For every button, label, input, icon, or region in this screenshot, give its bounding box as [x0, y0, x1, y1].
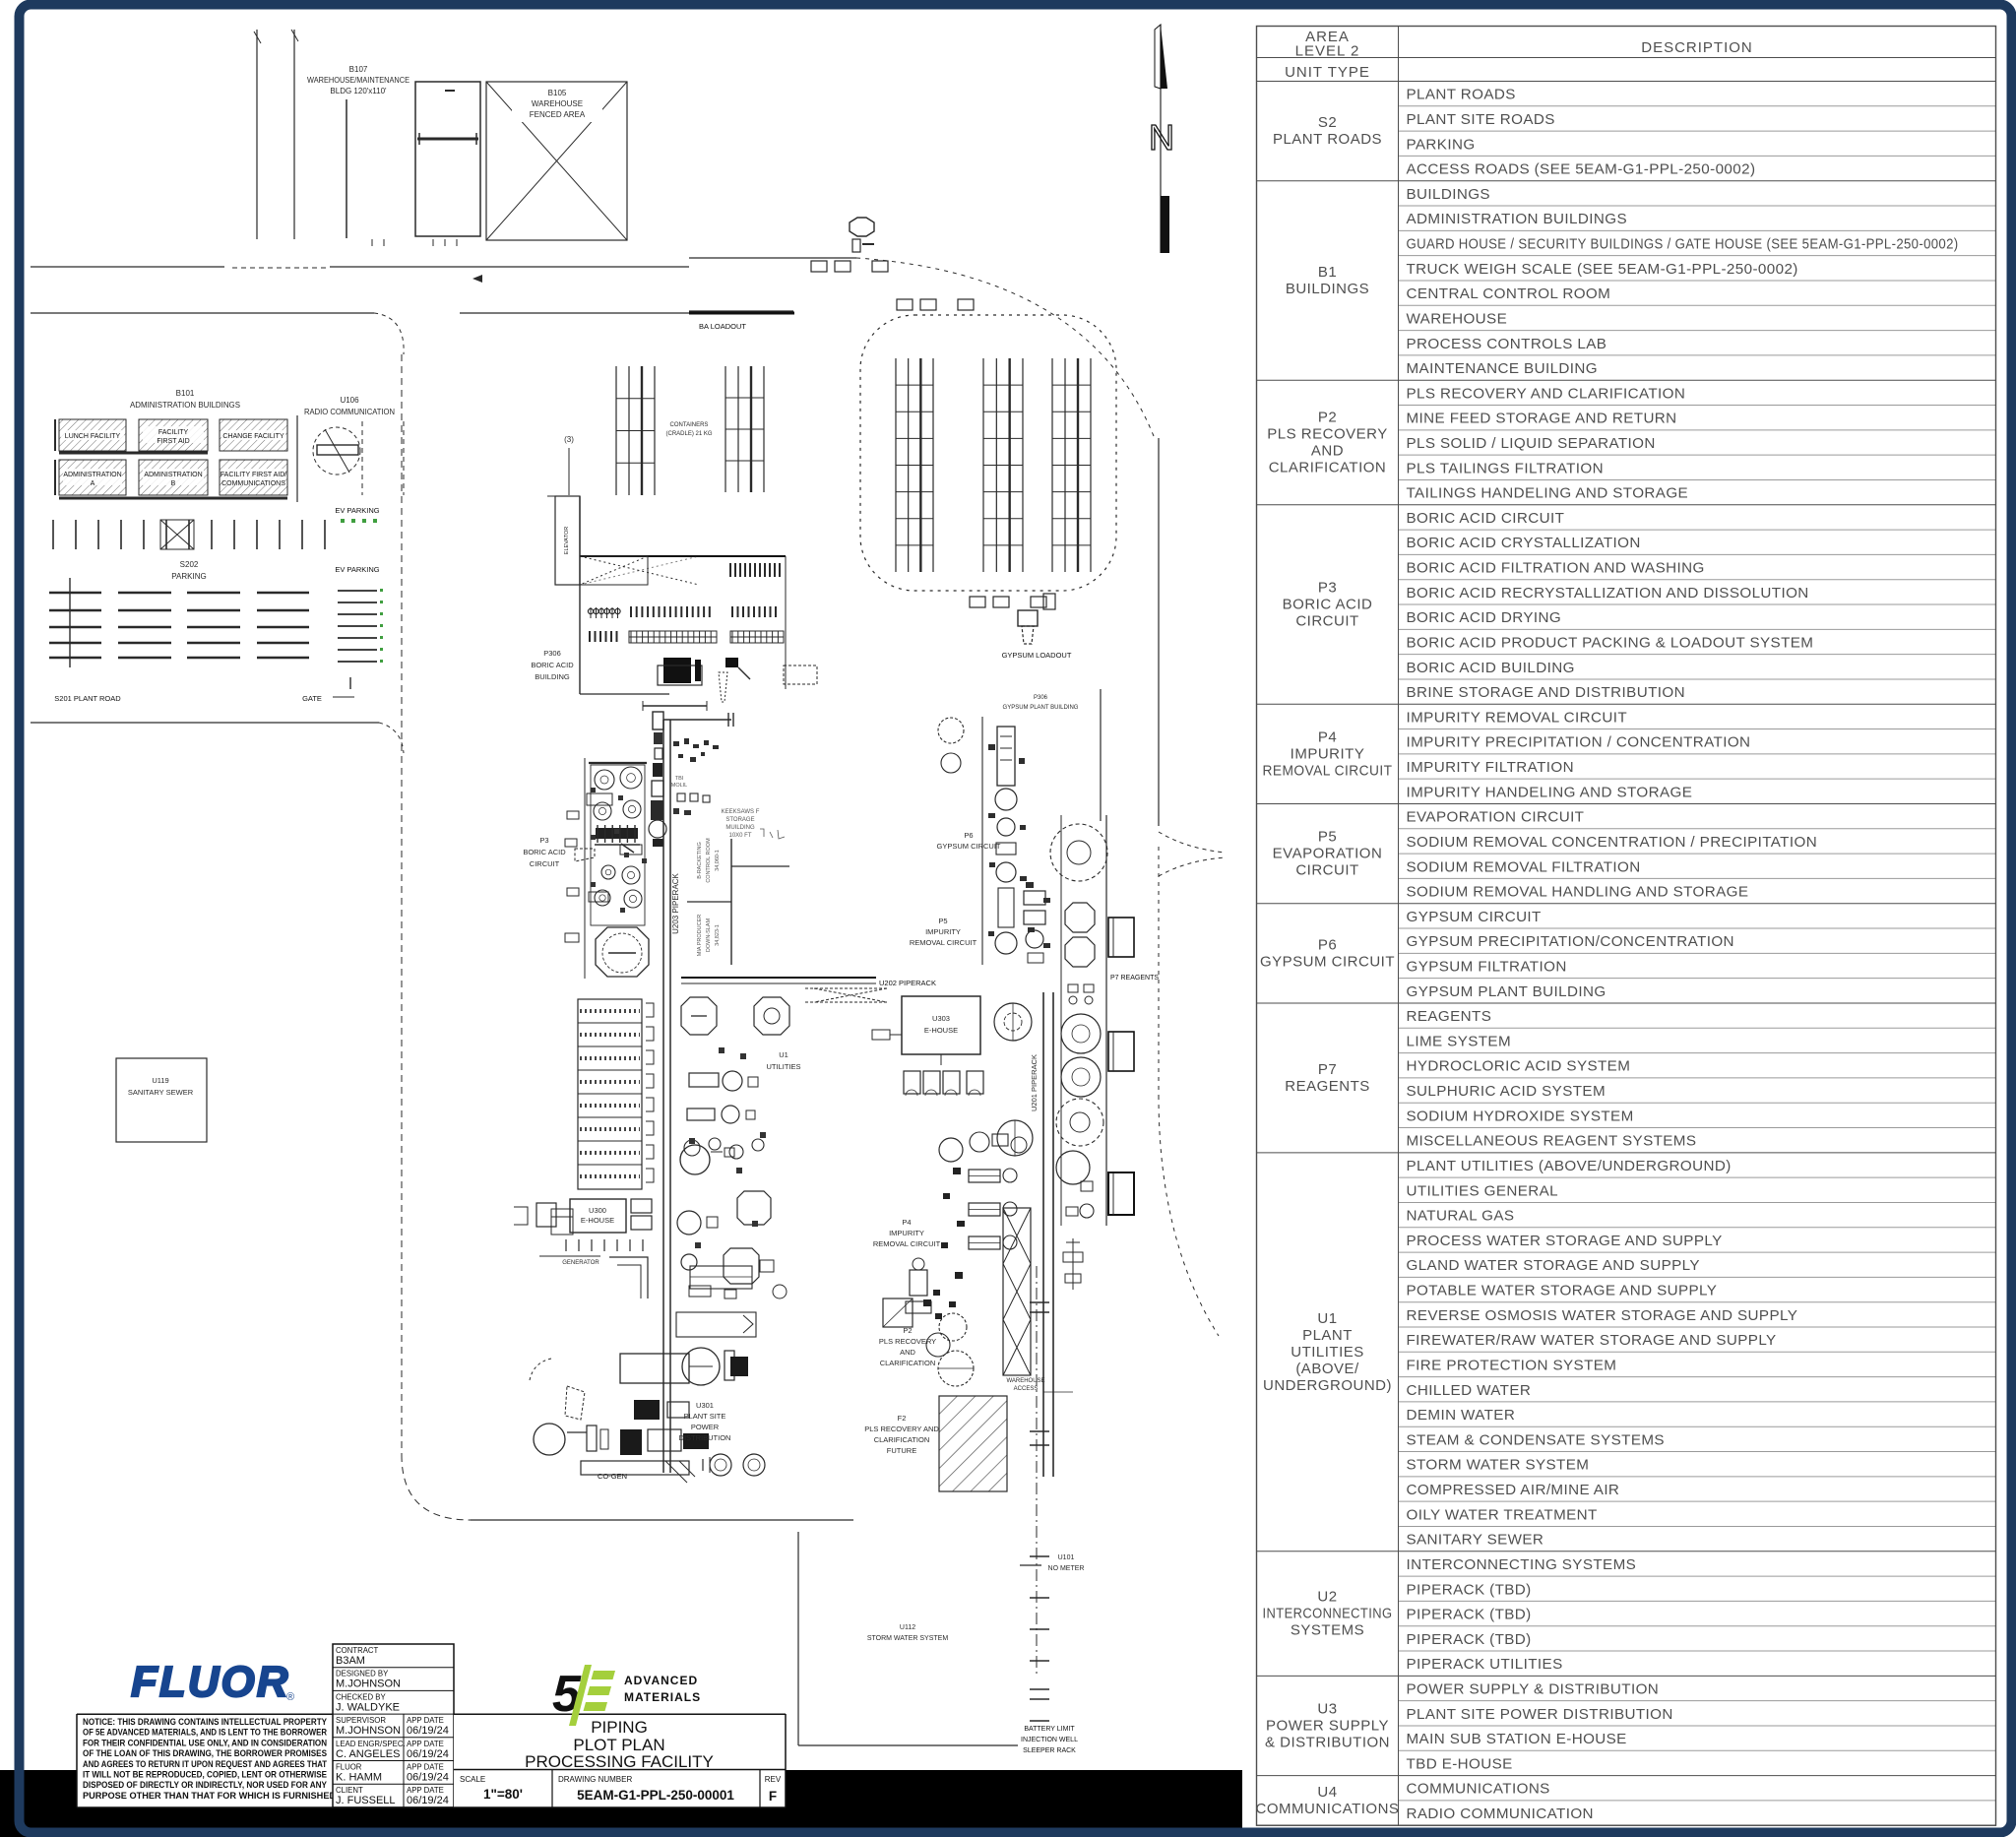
svg-text:P4: P4	[902, 1218, 911, 1227]
svg-text:®: ®	[286, 1691, 294, 1703]
svg-text:LIME SYSTEM: LIME SYSTEM	[1407, 1033, 1512, 1049]
svg-text:BORIC ACID: BORIC ACID	[1283, 597, 1373, 613]
svg-text:GYPSUM CIRCUIT: GYPSUM CIRCUIT	[936, 842, 1000, 851]
svg-text:ACCESS: ACCESS	[1014, 1386, 1039, 1392]
svg-text:P7: P7	[1318, 1061, 1337, 1078]
svg-text:U106: U106	[340, 396, 359, 405]
svg-text:DOWN-SLAM: DOWN-SLAM	[706, 918, 712, 952]
svg-text:REVERSE OSMOSIS WATER STORAGE: REVERSE OSMOSIS WATER STORAGE AND SUPPLY	[1407, 1307, 1798, 1324]
svg-text:SLEEPER RACK: SLEEPER RACK	[1023, 1747, 1076, 1754]
svg-text:WAREHOUSE: WAREHOUSE	[1407, 310, 1508, 327]
svg-text:M.JOHNSON: M.JOHNSON	[336, 1679, 401, 1690]
svg-text:J. FUSSELL: J. FUSSELL	[336, 1795, 396, 1806]
svg-text:E-HOUSE: E-HOUSE	[581, 1216, 614, 1225]
svg-text:FIRE PROTECTION SYSTEM: FIRE PROTECTION SYSTEM	[1407, 1357, 1617, 1373]
svg-text:SODIUM REMOVAL FILTRATION: SODIUM REMOVAL FILTRATION	[1407, 858, 1641, 875]
svg-text:BATTERY LIMIT: BATTERY LIMIT	[1024, 1726, 1075, 1733]
svg-text:NATURAL GAS: NATURAL GAS	[1407, 1208, 1515, 1225]
svg-text:BORIC ACID: BORIC ACID	[531, 661, 574, 669]
svg-text:FOR THEIR CONFIDENTIAL USE ONL: FOR THEIR CONFIDENTIAL USE ONLY, AND IN …	[83, 1738, 327, 1747]
svg-text:06/19/24: 06/19/24	[407, 1748, 449, 1760]
svg-text:EV PARKING: EV PARKING	[335, 565, 379, 574]
svg-text:PIPERACK (TBD): PIPERACK (TBD)	[1407, 1581, 1532, 1598]
svg-text:GYPSUM LOADOUT: GYPSUM LOADOUT	[1002, 651, 1072, 660]
svg-text:SYSTEMS: SYSTEMS	[1291, 1622, 1364, 1639]
svg-text:RADIO COMMUNICATION: RADIO COMMUNICATION	[304, 408, 395, 416]
svg-text:EVAPORATION: EVAPORATION	[1273, 846, 1383, 862]
svg-text:SODIUM HYDROXIDE SYSTEM: SODIUM HYDROXIDE SYSTEM	[1407, 1108, 1634, 1124]
svg-text:PROCESS WATER STORAGE AND SUPP: PROCESS WATER STORAGE AND SUPPLY	[1407, 1233, 1723, 1249]
svg-text:PLS TAILINGS FILTRATION: PLS TAILINGS FILTRATION	[1407, 460, 1605, 476]
svg-text:P3: P3	[539, 836, 548, 845]
svg-text:SANITARY SEWER: SANITARY SEWER	[128, 1088, 194, 1097]
svg-text:EV PARKING: EV PARKING	[335, 506, 379, 515]
svg-text:STORAGE: STORAGE	[725, 817, 754, 823]
svg-text:APP DATE: APP DATE	[407, 1786, 444, 1795]
svg-text:REAGENTS: REAGENTS	[1285, 1078, 1370, 1095]
svg-text:FIREWATER/RAW WATER STORAGE AN: FIREWATER/RAW WATER STORAGE AND SUPPLY	[1407, 1332, 1777, 1349]
svg-text:TRUCK WEIGH SCALE (SEE 5EAM-G1: TRUCK WEIGH SCALE (SEE 5EAM-G1-PPL-250-0…	[1407, 261, 1798, 278]
svg-text:06/19/24: 06/19/24	[407, 1725, 449, 1737]
svg-text:GYPSUM CIRCUIT: GYPSUM CIRCUIT	[1407, 909, 1542, 925]
svg-text:B-RACKETING: B-RACKETING	[697, 842, 703, 879]
svg-text:OF THE LOAN OF THIS DRAWING, T: OF THE LOAN OF THIS DRAWING, THE BORROWE…	[83, 1748, 327, 1758]
svg-text:WAREHOUSE: WAREHOUSE	[1006, 1378, 1044, 1384]
svg-text:WAREHOUSE/MAINTENANCE: WAREHOUSE/MAINTENANCE	[307, 76, 409, 85]
svg-text:PLS SOLID / LIQUID SEPARATION: PLS SOLID / LIQUID SEPARATION	[1407, 435, 1656, 452]
svg-text:REMOVAL CIRCUIT: REMOVAL CIRCUIT	[910, 938, 977, 947]
svg-text:BORIC ACID RECRYSTALLIZATION A: BORIC ACID RECRYSTALLIZATION AND DISSOLU…	[1407, 585, 1809, 602]
svg-text:REMOVAL CIRCUIT: REMOVAL CIRCUIT	[873, 1239, 941, 1248]
svg-text:OF 5E ADVANCED MATERIALS, AND: OF 5E ADVANCED MATERIALS, AND IS LENT TO…	[83, 1728, 327, 1738]
svg-text:C. ANGELES: C. ANGELES	[336, 1748, 400, 1760]
svg-text:MAINTENANCE BUILDING: MAINTENANCE BUILDING	[1407, 360, 1599, 377]
svg-text:SULPHURIC ACID SYSTEM: SULPHURIC ACID SYSTEM	[1407, 1083, 1606, 1100]
svg-text:PLS RECOVERY: PLS RECOVERY	[879, 1337, 936, 1346]
svg-text:IMPURITY: IMPURITY	[1291, 745, 1365, 762]
svg-text:F2: F2	[898, 1414, 907, 1423]
svg-text:BORIC ACID PRODUCT PACKING & L: BORIC ACID PRODUCT PACKING & LOADOUT SYS…	[1407, 634, 1814, 651]
svg-text:P6: P6	[964, 831, 973, 840]
svg-text:BA LOADOUT: BA LOADOUT	[699, 322, 746, 331]
svg-text:CLARIFICATION: CLARIFICATION	[1269, 459, 1387, 475]
svg-text:REV: REV	[765, 1775, 782, 1784]
svg-text:P5: P5	[1318, 829, 1337, 846]
svg-text:CIRCUIT: CIRCUIT	[1295, 862, 1358, 879]
svg-text:MOLIL: MOLIL	[671, 783, 688, 789]
svg-text:PLS RECOVERY AND: PLS RECOVERY AND	[864, 1425, 939, 1433]
svg-text:POWER: POWER	[691, 1423, 720, 1431]
svg-text:U300: U300	[589, 1206, 606, 1215]
svg-text:IMPURITY: IMPURITY	[925, 927, 961, 936]
svg-text:ADMINISTRATION: ADMINISTRATION	[63, 472, 121, 478]
svg-text:U119: U119	[152, 1076, 168, 1085]
svg-text:UTILITIES GENERAL: UTILITIES GENERAL	[1407, 1182, 1559, 1199]
svg-text:PROCESS CONTROLS LAB: PROCESS CONTROLS LAB	[1407, 336, 1607, 352]
svg-text:UNDERGROUND): UNDERGROUND)	[1263, 1377, 1392, 1394]
svg-text:F: F	[769, 1789, 777, 1804]
svg-text:U303: U303	[932, 1014, 950, 1023]
svg-text:IMPURITY REMOVAL CIRCUIT: IMPURITY REMOVAL CIRCUIT	[1407, 709, 1628, 726]
svg-text:FENCED AREA: FENCED AREA	[530, 110, 586, 119]
svg-text:U2: U2	[1317, 1589, 1337, 1606]
svg-text:TAILINGS HANDELING AND STORAGE: TAILINGS HANDELING AND STORAGE	[1407, 485, 1689, 502]
svg-text:SCALE: SCALE	[460, 1775, 485, 1784]
svg-text:E-HOUSE: E-HOUSE	[924, 1026, 958, 1035]
svg-text:IT WILL NOT BE REPRODUCED, COP: IT WILL NOT BE REPRODUCED, COPIED, LENT …	[83, 1770, 327, 1780]
svg-text:POTABLE WATER STORAGE AND SUPP: POTABLE WATER STORAGE AND SUPPLY	[1407, 1283, 1718, 1299]
svg-text:PLANT UTILITIES (ABOVE/UNDERGR: PLANT UTILITIES (ABOVE/UNDERGROUND)	[1407, 1158, 1732, 1174]
svg-text:UTILITIES: UTILITIES	[1291, 1344, 1364, 1361]
svg-text:PIPING: PIPING	[591, 1718, 648, 1737]
svg-text:B: B	[171, 480, 176, 487]
svg-text:U203 PIPERACK: U203 PIPERACK	[671, 872, 680, 933]
svg-text:SUPERVISOR: SUPERVISOR	[336, 1716, 386, 1725]
svg-text:K. HAMM: K. HAMM	[336, 1772, 382, 1784]
svg-text:MISCELLANEOUS REAGENT SYSTEMS: MISCELLANEOUS REAGENT SYSTEMS	[1407, 1133, 1697, 1150]
svg-text:BORIC ACID FILTRATION AND WASH: BORIC ACID FILTRATION AND WASHING	[1407, 560, 1705, 577]
svg-text:PURPOSE OTHER THAN THAT FOR WH: PURPOSE OTHER THAN THAT FOR WHICH IS FUR…	[83, 1791, 339, 1801]
svg-text:DESIGNED BY: DESIGNED BY	[336, 1670, 389, 1679]
svg-text:U301: U301	[696, 1401, 714, 1410]
svg-text:U201 PIPERACK: U201 PIPERACK	[1030, 1054, 1039, 1111]
svg-text:PLANT ROADS: PLANT ROADS	[1407, 87, 1516, 103]
svg-text:PLANT SITE: PLANT SITE	[684, 1412, 726, 1421]
svg-text:BORIC ACID CIRCUIT: BORIC ACID CIRCUIT	[1407, 510, 1565, 527]
svg-text:SODIUM REMOVAL CONCENTRATION /: SODIUM REMOVAL CONCENTRATION / PRECIPITA…	[1407, 834, 1818, 851]
svg-text:U1: U1	[779, 1050, 788, 1059]
svg-text:PIPERACK (TBD): PIPERACK (TBD)	[1407, 1607, 1532, 1623]
svg-text:EVAPORATION CIRCUIT: EVAPORATION CIRCUIT	[1407, 809, 1585, 826]
svg-text:STORM WATER SYSTEM: STORM WATER SYSTEM	[1407, 1457, 1590, 1474]
svg-text:& DISTRIBUTION: & DISTRIBUTION	[1265, 1734, 1390, 1750]
svg-text:PLANT ROADS: PLANT ROADS	[1273, 131, 1382, 148]
svg-text:GYPSUM PLANT BUILDING: GYPSUM PLANT BUILDING	[1003, 705, 1079, 711]
svg-text:U4: U4	[1317, 1784, 1337, 1801]
svg-text:STEAM & CONDENSATE SYSTEMS: STEAM & CONDENSATE SYSTEMS	[1407, 1431, 1665, 1448]
svg-text:B101: B101	[176, 389, 195, 398]
svg-text:P7 REAGENTS: P7 REAGENTS	[1110, 975, 1159, 982]
svg-text:PLANT SITE ROADS: PLANT SITE ROADS	[1407, 111, 1555, 128]
svg-text:MINE FEED STORAGE AND RETURN: MINE FEED STORAGE AND RETURN	[1407, 411, 1677, 427]
svg-text:PARKING: PARKING	[171, 572, 206, 581]
svg-text:CLIENT: CLIENT	[336, 1786, 363, 1795]
svg-text:CHANGE FACILITY: CHANGE FACILITY	[222, 433, 284, 440]
svg-text:INTERCONNECTING: INTERCONNECTING	[1263, 1606, 1393, 1622]
svg-text:COMMUNICATIONS: COMMUNICATIONS	[1256, 1801, 1400, 1817]
svg-text:N: N	[1149, 117, 1174, 158]
svg-text:BUILDING: BUILDING	[535, 672, 570, 681]
svg-text:U1: U1	[1317, 1310, 1337, 1327]
svg-text:B1: B1	[1318, 264, 1337, 281]
svg-text:BLDG 120'x110': BLDG 120'x110'	[330, 87, 387, 95]
svg-text:1"=80': 1"=80'	[483, 1787, 523, 1802]
svg-text:BUILDINGS: BUILDINGS	[1407, 186, 1490, 203]
svg-text:POWER SUPPLY & DISTRIBUTION: POWER SUPPLY & DISTRIBUTION	[1407, 1680, 1660, 1697]
svg-text:MATERIALS: MATERIALS	[624, 1690, 701, 1704]
svg-text:SODIUM REMOVAL HANDLING AND ST: SODIUM REMOVAL HANDLING AND STORAGE	[1407, 884, 1749, 901]
svg-text:REMOVAL CIRCUIT: REMOVAL CIRCUIT	[1263, 762, 1393, 779]
svg-text:AND AGREES TO RETURN IT UPON R: AND AGREES TO RETURN IT UPON REQUEST AND…	[83, 1759, 327, 1769]
svg-text:MUILDING: MUILDING	[725, 825, 755, 831]
svg-text:LEVEL 2: LEVEL 2	[1295, 43, 1360, 60]
svg-text:GYPSUM CIRCUIT: GYPSUM CIRCUIT	[1260, 953, 1395, 970]
svg-text:PIPERACK (TBD): PIPERACK (TBD)	[1407, 1631, 1532, 1648]
svg-text:OILY WATER TREATMENT: OILY WATER TREATMENT	[1407, 1506, 1598, 1523]
svg-text:PLANT SITE POWER DISTRIBUTION: PLANT SITE POWER DISTRIBUTION	[1407, 1706, 1673, 1723]
svg-text:B107: B107	[349, 65, 368, 74]
svg-text:AND: AND	[900, 1348, 915, 1357]
svg-text:ADMINISTRATION BUILDINGS: ADMINISTRATION BUILDINGS	[130, 401, 240, 410]
svg-text:CLARIFICATION: CLARIFICATION	[880, 1359, 936, 1367]
svg-text:NO METER: NO METER	[1048, 1565, 1085, 1572]
svg-text:PLS RECOVERY AND CLARIFICATION: PLS RECOVERY AND CLARIFICATION	[1407, 385, 1686, 402]
svg-text:U202 PIPERACK: U202 PIPERACK	[879, 979, 936, 987]
svg-text:CO-GEN: CO-GEN	[598, 1472, 627, 1481]
svg-text:COMPRESSED AIR/MINE AIR: COMPRESSED AIR/MINE AIR	[1407, 1482, 1620, 1498]
svg-text:REAGENTS: REAGENTS	[1407, 1008, 1492, 1025]
svg-text:5EAM-G1-PPL-250-00001: 5EAM-G1-PPL-250-00001	[577, 1788, 734, 1803]
svg-text:GENERATOR: GENERATOR	[562, 1260, 599, 1266]
svg-text:GATE: GATE	[302, 694, 322, 703]
svg-text:P2: P2	[1318, 409, 1337, 425]
svg-text:IMPURITY HANDELING AND STORAGE: IMPURITY HANDELING AND STORAGE	[1407, 784, 1693, 800]
svg-text:PLANT: PLANT	[1302, 1327, 1353, 1344]
svg-text:CHECKED BY: CHECKED BY	[336, 1692, 386, 1701]
svg-text:S202: S202	[180, 560, 199, 569]
svg-text:P5: P5	[938, 917, 947, 925]
svg-text:(ABOVE/: (ABOVE/	[1295, 1361, 1359, 1377]
svg-text:TBI: TBI	[675, 776, 684, 782]
svg-text:CENTRAL CONTROL ROOM: CENTRAL CONTROL ROOM	[1407, 285, 1611, 302]
svg-text:FACILITY: FACILITY	[158, 429, 189, 436]
svg-text:FLUOR: FLUOR	[336, 1763, 362, 1772]
svg-text:J. WALDYKE: J. WALDYKE	[336, 1701, 400, 1713]
svg-text:KEEKSAWS F: KEEKSAWS F	[722, 809, 760, 815]
svg-text:AND: AND	[1311, 442, 1344, 459]
svg-text:(CRADLE) 21 KG: (CRADLE) 21 KG	[665, 431, 712, 437]
svg-text:BUILDINGS: BUILDINGS	[1286, 281, 1369, 297]
svg-text:U101: U101	[1058, 1554, 1075, 1561]
svg-text:LUNCH FACILITY: LUNCH FACILITY	[65, 433, 121, 440]
svg-text:DEMIN WATER: DEMIN WATER	[1407, 1407, 1516, 1424]
svg-text:APP DATE: APP DATE	[407, 1763, 444, 1772]
svg-text:CONTAINERS: CONTAINERS	[670, 422, 709, 428]
svg-text:POWER SUPPLY: POWER SUPPLY	[1266, 1717, 1389, 1734]
svg-text:FLUOR: FLUOR	[131, 1658, 290, 1706]
svg-text:INJECTION WELL: INJECTION WELL	[1021, 1737, 1078, 1743]
svg-text:P4: P4	[1318, 728, 1337, 745]
svg-text:DISTRIBUTION: DISTRIBUTION	[679, 1433, 731, 1442]
svg-text:A: A	[91, 480, 95, 487]
svg-text:CONTRACT: CONTRACT	[336, 1646, 379, 1655]
svg-text:RADIO COMMUNICATION: RADIO COMMUNICATION	[1407, 1805, 1594, 1822]
svg-text:IMPURITY PRECIPITATION / CONCE: IMPURITY PRECIPITATION / CONCENTRATION	[1407, 734, 1751, 751]
svg-text:BORIC ACID BUILDING: BORIC ACID BUILDING	[1407, 660, 1575, 676]
svg-text:GUARD HOUSE / SECURITY BUILDIN: GUARD HOUSE / SECURITY BUILDINGS / GATE …	[1407, 236, 1959, 253]
svg-text:P6: P6	[1318, 936, 1337, 953]
svg-text:GYPSUM FILTRATION: GYPSUM FILTRATION	[1407, 959, 1567, 976]
svg-text:U112: U112	[900, 1624, 915, 1631]
svg-text:COMMUNICATIONS: COMMUNICATIONS	[1407, 1781, 1550, 1798]
svg-text:DRAWING NUMBER: DRAWING NUMBER	[558, 1775, 632, 1784]
svg-text:CHILLED WATER: CHILLED WATER	[1407, 1382, 1532, 1399]
svg-text:P3: P3	[1318, 580, 1337, 597]
svg-text:34,823-1: 34,823-1	[715, 924, 721, 946]
svg-text:PARKING: PARKING	[1407, 136, 1476, 153]
svg-text:BORIC ACID DRYING: BORIC ACID DRYING	[1407, 609, 1562, 626]
svg-text:ACCESS ROADS (SEE 5EAM-G1-PPL-: ACCESS ROADS (SEE 5EAM-G1-PPL-250-0002)	[1407, 161, 1756, 178]
svg-text:LEAD ENGR/SPEC.: LEAD ENGR/SPEC.	[336, 1740, 406, 1748]
svg-text:ADVANCED: ADVANCED	[624, 1674, 698, 1687]
svg-text:BRINE STORAGE AND DISTRIBUTION: BRINE STORAGE AND DISTRIBUTION	[1407, 684, 1685, 701]
svg-text:DISPOSED OF DIRECTLY OR INDIRE: DISPOSED OF DIRECTLY OR INDIRECTLY, NOR …	[83, 1780, 327, 1790]
svg-text:B105: B105	[548, 89, 567, 97]
svg-text:M.JOHNSON: M.JOHNSON	[336, 1725, 401, 1737]
svg-text:FACILITY FIRST AID/: FACILITY FIRST AID/	[220, 472, 286, 478]
svg-text:SANITARY SEWER: SANITARY SEWER	[1407, 1532, 1544, 1549]
svg-text:BORIC ACID CRYSTALLIZATION: BORIC ACID CRYSTALLIZATION	[1407, 535, 1641, 551]
svg-text:U3: U3	[1317, 1700, 1337, 1717]
svg-text:P306: P306	[1034, 695, 1048, 701]
svg-text:S2: S2	[1318, 114, 1337, 131]
svg-text:CLARIFICATION: CLARIFICATION	[874, 1435, 930, 1444]
svg-text:FUTURE: FUTURE	[887, 1446, 916, 1455]
svg-text:NOTICE: THIS DRAWING CONTAINS: NOTICE: THIS DRAWING CONTAINS INTELLECTU…	[83, 1717, 327, 1727]
svg-text:COMMUNICATIONS: COMMUNICATIONS	[221, 480, 285, 487]
svg-text:HYDROCLORIC ACID SYSTEM: HYDROCLORIC ACID SYSTEM	[1407, 1058, 1631, 1075]
svg-text:CIRCUIT: CIRCUIT	[1295, 613, 1358, 630]
svg-text:UTILITIES: UTILITIES	[766, 1062, 800, 1071]
svg-text:MAIN SUB STATION E-HOUSE: MAIN SUB STATION E-HOUSE	[1407, 1731, 1627, 1747]
svg-text:APP DATE: APP DATE	[407, 1740, 444, 1748]
svg-text:GYPSUM PLANT BUILDING: GYPSUM PLANT BUILDING	[1407, 983, 1606, 1000]
svg-text:STORM WATER SYSTEM: STORM WATER SYSTEM	[867, 1635, 948, 1642]
svg-text:B3AM: B3AM	[336, 1655, 365, 1667]
svg-text:MIA PRODUCER: MIA PRODUCER	[697, 915, 703, 957]
svg-text:FIRST AID: FIRST AID	[157, 438, 189, 445]
svg-text:GLAND WATER STORAGE AND SUPPLY: GLAND WATER STORAGE AND SUPPLY	[1407, 1257, 1700, 1274]
svg-text:TBD E-HOUSE: TBD E-HOUSE	[1407, 1755, 1513, 1772]
svg-text:P306: P306	[543, 649, 561, 658]
svg-text:ADMINISTRATION BUILDINGS: ADMINISTRATION BUILDINGS	[1407, 211, 1628, 227]
svg-text:CONTROL ROOM: CONTROL ROOM	[706, 838, 712, 883]
svg-text:WAREHOUSE: WAREHOUSE	[532, 99, 583, 108]
svg-text:PROCESSING FACILITY: PROCESSING FACILITY	[525, 1752, 714, 1771]
svg-text:P2: P2	[903, 1326, 912, 1335]
svg-text:06/19/24: 06/19/24	[407, 1772, 449, 1784]
svg-text:34,060-1: 34,060-1	[715, 850, 721, 871]
svg-text:BORIC ACID: BORIC ACID	[523, 848, 566, 856]
svg-text:10X0 FT: 10X0 FT	[728, 833, 751, 839]
svg-text:ADMINISTRATION: ADMINISTRATION	[144, 472, 202, 478]
svg-text:IMPURITY FILTRATION: IMPURITY FILTRATION	[1407, 759, 1574, 776]
svg-text:CIRCUIT: CIRCUIT	[530, 859, 560, 868]
svg-text:IMPURITY: IMPURITY	[889, 1229, 924, 1237]
svg-text:(3): (3)	[564, 435, 574, 444]
svg-text:ELEVATOR: ELEVATOR	[564, 527, 570, 554]
svg-text:DESCRIPTION: DESCRIPTION	[1641, 39, 1753, 56]
svg-text:INTERCONNECTING SYSTEMS: INTERCONNECTING SYSTEMS	[1407, 1556, 1637, 1573]
svg-text:GYPSUM PRECIPITATION/CONCENTRA: GYPSUM PRECIPITATION/CONCENTRATION	[1407, 933, 1734, 950]
svg-text:S201 PLANT ROAD: S201 PLANT ROAD	[54, 694, 121, 703]
svg-text:06/19/24: 06/19/24	[407, 1795, 449, 1806]
svg-text:PIPERACK UTILITIES: PIPERACK UTILITIES	[1407, 1656, 1563, 1673]
svg-text:APP DATE: APP DATE	[407, 1716, 444, 1725]
svg-text:PLS RECOVERY: PLS RECOVERY	[1267, 425, 1387, 442]
svg-text:UNIT TYPE: UNIT TYPE	[1285, 64, 1370, 81]
